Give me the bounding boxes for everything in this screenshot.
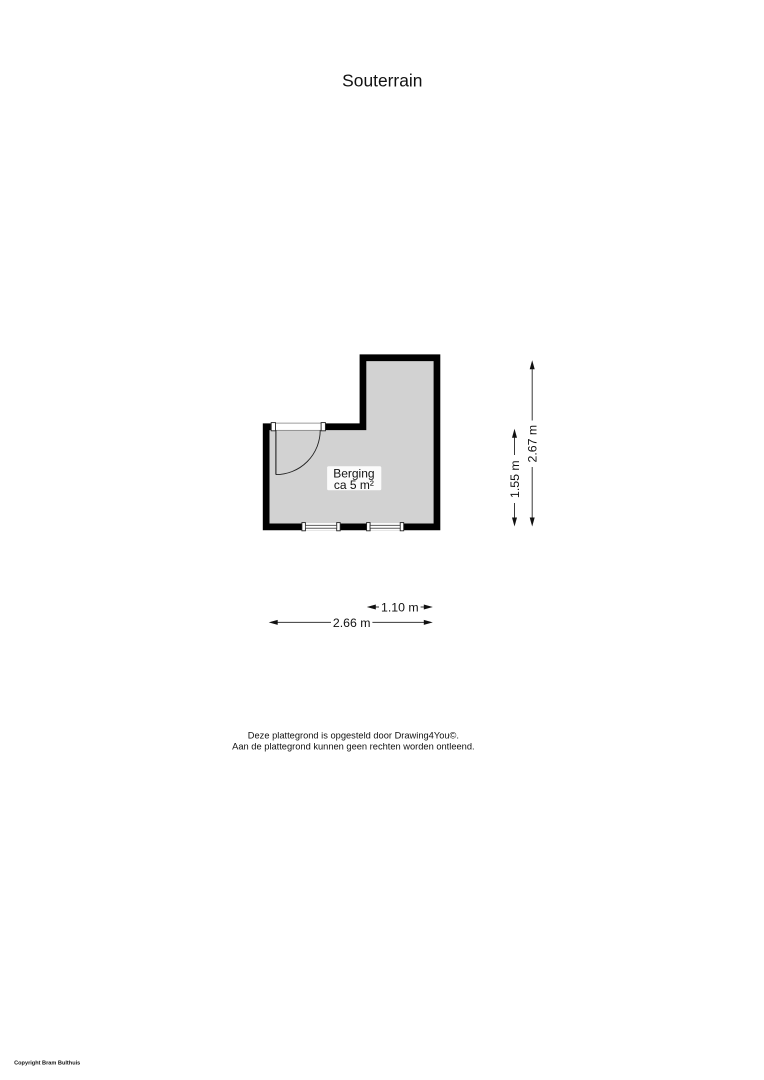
svg-text:Souterrain: Souterrain: [342, 71, 422, 91]
svg-text:Copyright Bram Bulthuis: Copyright Bram Bulthuis: [14, 1060, 80, 1066]
svg-text:2.66 m: 2.66 m: [333, 616, 371, 630]
svg-text:1.55 m: 1.55 m: [508, 460, 522, 498]
svg-text:ca 5 m²: ca 5 m²: [334, 478, 374, 492]
svg-text:Aan de plattegrond kunnen geen: Aan de plattegrond kunnen geen rechten w…: [232, 741, 474, 751]
svg-text:2.67 m: 2.67 m: [526, 425, 540, 463]
svg-text:Deze plattegrond is opgesteld: Deze plattegrond is opgesteld door Drawi…: [248, 731, 459, 741]
svg-text:1.10 m: 1.10 m: [381, 600, 419, 614]
